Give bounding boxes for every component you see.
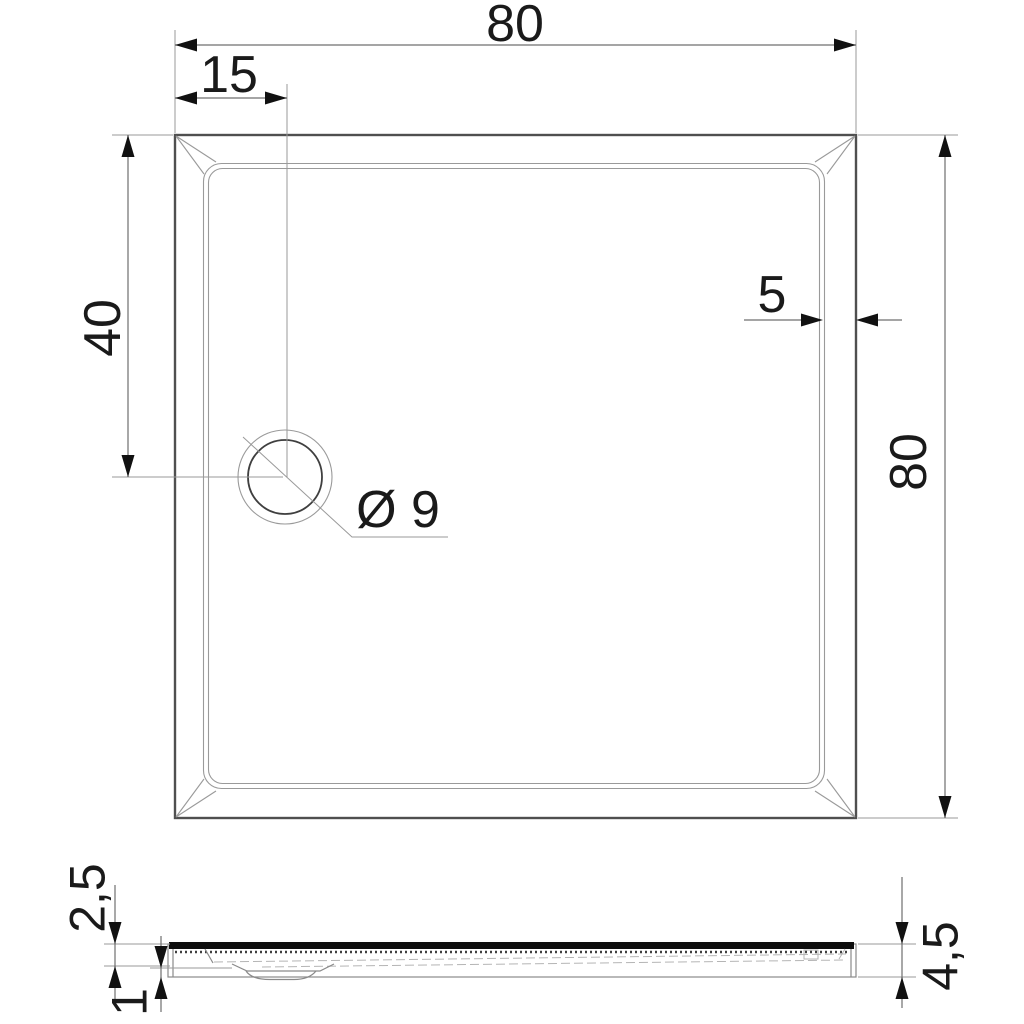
arrow-down-icon [122,455,135,477]
floor-slope-line [262,960,846,967]
dim-width-80-top: 80 [175,0,856,133]
dim-width-label: 80 [486,0,544,53]
technical-drawing: Ø 9 80 15 40 [0,0,1024,1024]
dim-foot-height-label: 1 [102,988,158,1016]
side-view: 2,5 1 4,5 [60,863,969,1016]
arrow-up-icon [939,135,952,157]
top-view: Ø 9 80 15 40 [74,0,958,818]
arrow-left-icon [856,314,878,327]
arrow-left-icon [175,39,197,52]
dim-drain-offset-x-label: 15 [200,46,258,104]
dim-drain-offset-x-15: 15 [175,46,287,477]
arrow-up-icon [896,977,909,999]
tray-inner-rim-outer-line [204,164,825,789]
arrow-down-icon [155,946,168,968]
arrow-down-icon [939,796,952,818]
arrow-right-icon [834,39,856,52]
dim-total-height-4-5: 4,5 [858,877,969,1008]
arrow-up-icon [109,966,122,988]
drain: Ø 9 [238,430,448,539]
tray-inner-rim-inner-line [209,169,820,784]
dim-foot-height-1: 1 [102,936,168,1016]
drain-diameter-label: Ø 9 [356,481,440,539]
arrow-right-icon [265,92,287,105]
profile-top-surface [169,942,854,949]
dim-rim-width-label: 5 [758,266,787,324]
drawing-canvas: Ø 9 80 15 40 [0,0,1024,1024]
dim-rim-height-2-5: 2,5 [60,863,171,1000]
dim-drain-offset-y-label: 40 [74,299,132,357]
dim-depth-label: 80 [880,433,938,491]
dim-rim-height-label: 2,5 [60,863,116,933]
dim-depth-80-right: 80 [858,135,958,818]
arrow-down-icon [896,922,909,944]
dim-rim-width-5: 5 [744,266,902,327]
arrow-left-icon [175,92,197,105]
dim-drain-offset-y-40: 40 [74,135,283,477]
dim-total-height-label: 4,5 [913,921,969,991]
arrow-up-icon [122,135,135,157]
